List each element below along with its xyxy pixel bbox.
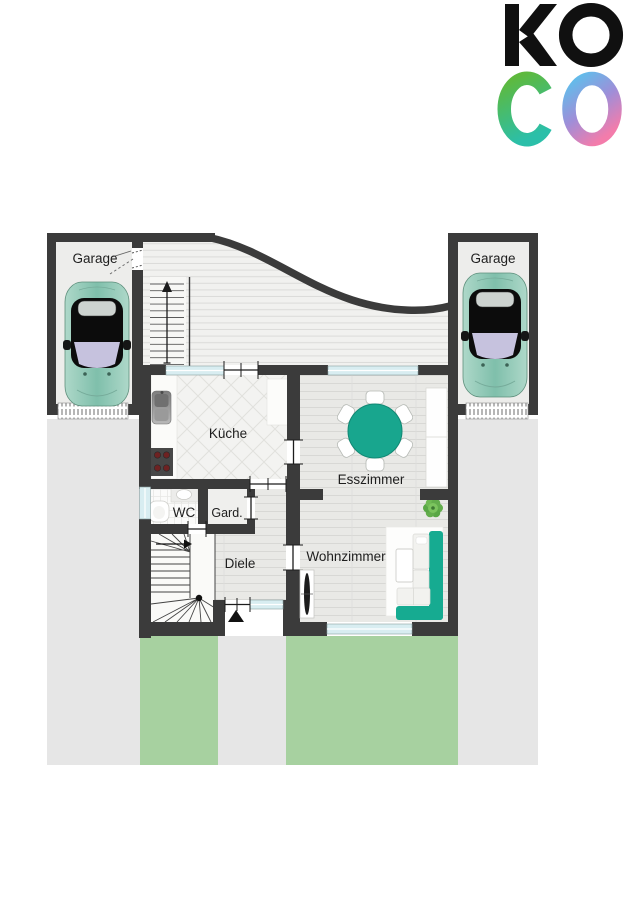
- floorplan-page: Garage Garage: [0, 0, 636, 900]
- garage-left: Garage: [47, 233, 143, 419]
- terrace: [142, 233, 450, 368]
- door-living-hall: [283, 545, 303, 570]
- dining-chair: [366, 458, 384, 471]
- terrace-top-wall: [142, 233, 215, 242]
- logo-o: [569, 79, 615, 140]
- door-leaf-symbol: [300, 570, 314, 618]
- floorplan-svg: Garage Garage: [0, 0, 636, 900]
- living-label: Wohnzimmer: [306, 549, 386, 564]
- driveway-left: [47, 419, 141, 765]
- dining-label: Esszimmer: [338, 472, 405, 487]
- garage-right: Garage: [448, 233, 538, 419]
- driveway-right: [458, 419, 538, 765]
- kitchen-cabinet: [267, 379, 289, 425]
- kitchen-stove: [151, 448, 173, 476]
- winder-stairs: [151, 534, 215, 622]
- terrace-stairs: [150, 277, 190, 368]
- garage-left-label: Garage: [72, 251, 117, 266]
- car-right: [461, 273, 529, 397]
- lawn-right: [286, 636, 458, 765]
- hallway-label: Diele: [225, 556, 256, 571]
- wall-right: [448, 233, 458, 636]
- kitchen-label: Küche: [209, 426, 247, 441]
- sofa-back-bottom: [396, 606, 443, 620]
- wardrobe-label: Gard.: [211, 506, 242, 520]
- koco-logo: [504, 4, 616, 140]
- dining-chair: [366, 391, 384, 404]
- sofa-pillow: [416, 537, 427, 544]
- logo-ko: [505, 4, 616, 66]
- wc-label: WC: [173, 505, 196, 520]
- garage-right-label: Garage: [470, 251, 515, 266]
- coffee-table: [396, 549, 413, 582]
- lawn-left: [140, 636, 218, 765]
- logo-c: [504, 78, 545, 140]
- dining-table: [348, 404, 402, 458]
- living-furniture: [386, 527, 443, 620]
- car-left: [63, 282, 131, 406]
- entrance-path: [218, 636, 286, 765]
- garage-door-right: [466, 403, 528, 419]
